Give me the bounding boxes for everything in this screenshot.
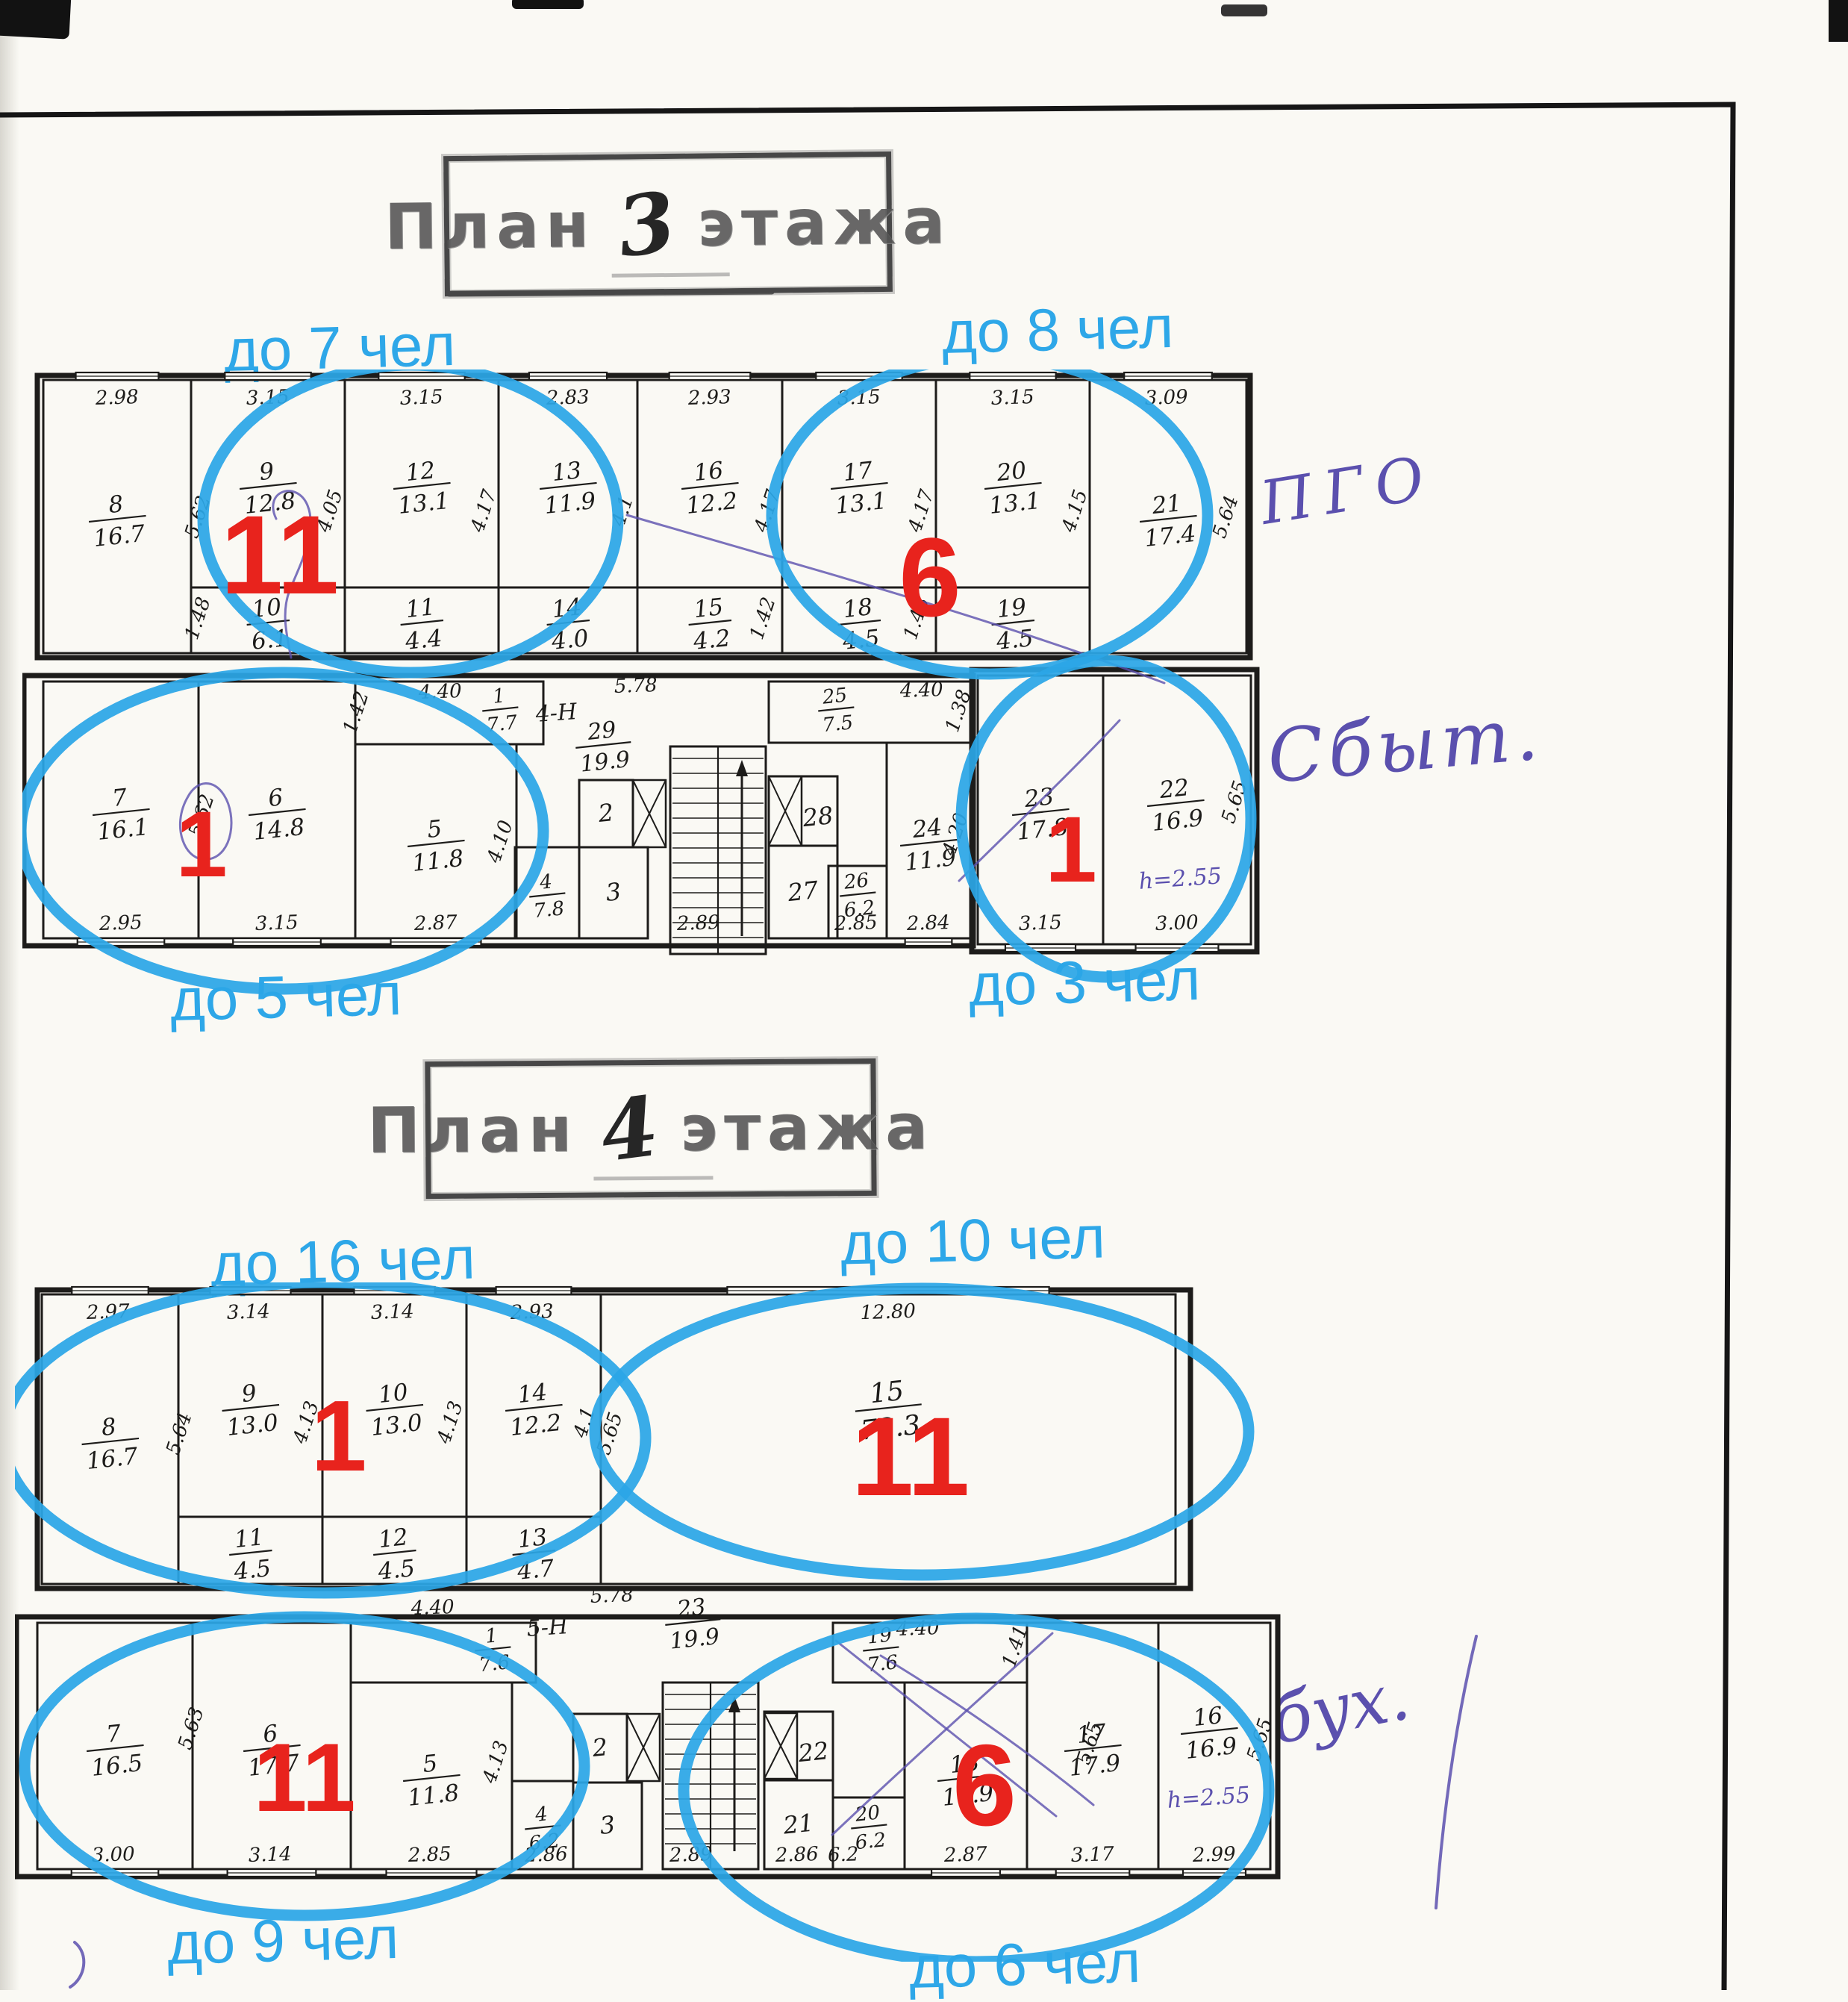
svg-text:8: 8 <box>100 1413 117 1441</box>
stamp-word: План <box>384 188 596 263</box>
svg-text:16.7: 16.7 <box>85 1443 140 1475</box>
staircase <box>670 746 766 954</box>
svg-text:16.9: 16.9 <box>1151 805 1205 837</box>
svg-text:21: 21 <box>1150 490 1183 520</box>
red-group-number: 11 <box>253 1723 355 1832</box>
dimension-label: 4.40 <box>899 679 943 702</box>
svg-text:24: 24 <box>911 814 943 843</box>
dimension-label: 3.14 <box>370 1300 414 1324</box>
floor3-title-stamp: План 3 этажа <box>443 152 893 296</box>
floor-number-handwritten: 4 <box>595 1077 664 1180</box>
room-label: 3 <box>605 877 622 907</box>
stamp-smudge-line <box>594 1176 713 1180</box>
svg-text:18: 18 <box>842 593 874 623</box>
svg-text:9: 9 <box>240 1379 257 1408</box>
scan-artifact <box>512 0 584 9</box>
room-label: 816.7 <box>79 1411 143 1475</box>
svg-text:7: 7 <box>105 1720 123 1748</box>
dimension-label: 3.14 <box>226 1300 270 1324</box>
red-group-number: 6 <box>899 514 961 640</box>
dimension-label: 3.17 <box>1070 1843 1114 1867</box>
dimension-label: 4.17 <box>466 487 502 536</box>
dimension-label: 4.13 <box>478 1738 513 1786</box>
room-label: 614.8 <box>246 782 309 846</box>
dimension-label: 5.63 <box>174 1704 208 1752</box>
dimension-label: 12.80 <box>860 1300 916 1325</box>
dimension-label: 3.15 <box>990 386 1034 410</box>
room-label: 2 <box>590 1733 609 1762</box>
svg-text:17.4: 17.4 <box>1143 520 1197 552</box>
svg-text:12: 12 <box>405 457 437 487</box>
room-label: 1311.9 <box>537 455 600 520</box>
shaft-xbox <box>769 776 802 846</box>
pen-stroke <box>1436 1636 1476 1908</box>
dimension-label: 2.87 <box>413 911 458 935</box>
dimension-label: 2.93 <box>687 386 731 410</box>
svg-text:6.2: 6.2 <box>854 1829 887 1854</box>
plan-annotation: 5-Н <box>525 1613 569 1642</box>
room-label: 3 <box>599 1810 616 1840</box>
svg-text:16.5: 16.5 <box>90 1750 144 1782</box>
dimension-label: 3.15 <box>255 911 299 935</box>
svg-text:7.8: 7.8 <box>532 897 565 923</box>
dimension-label: 3.15 <box>399 386 443 410</box>
shaft-xbox <box>633 780 666 847</box>
stamp-word: этажа <box>697 184 952 261</box>
svg-text:13: 13 <box>551 457 583 487</box>
svg-text:4.5: 4.5 <box>994 625 1034 655</box>
svg-text:4.5: 4.5 <box>376 1555 416 1585</box>
svg-text:15: 15 <box>693 593 725 623</box>
room-label: 1412.2 <box>502 1377 566 1441</box>
svg-text:14.8: 14.8 <box>252 814 306 846</box>
svg-text:4: 4 <box>534 1803 549 1827</box>
floor-plan-4-drawing: 816.7913.01013.01412.21572.3114.5124.513… <box>15 1282 1284 1962</box>
red-group-number: 1 <box>310 1379 366 1492</box>
dimension-label: 2.89 <box>675 911 720 935</box>
capacity-ellipse <box>961 661 1251 977</box>
dimension-label: 2.86 <box>774 1843 819 1867</box>
dimension-label: 3.14 <box>248 1843 292 1867</box>
room-label: 1213.1 <box>390 455 454 520</box>
svg-text:11.8: 11.8 <box>411 845 465 877</box>
dimension-label: 2.98 <box>94 386 139 410</box>
dimension-label: 3.15 <box>1018 911 1062 935</box>
dimension-label: 3.00 <box>1155 911 1199 935</box>
red-group-number: 1 <box>175 793 228 896</box>
room-label: 2319.9 <box>663 1592 724 1655</box>
room-label: 154.2 <box>686 593 735 655</box>
svg-text:10: 10 <box>377 1379 409 1409</box>
room-label: 1013.0 <box>363 1377 427 1441</box>
svg-text:11.9: 11.9 <box>543 487 597 520</box>
red-group-number: 6 <box>952 1721 1017 1850</box>
dimension-label: 1.42 <box>746 594 780 642</box>
dimension-label: 2.85 <box>407 1843 452 1867</box>
red-group-number: 11 <box>221 492 340 617</box>
capacity-caption: до 10 чел <box>840 1203 1106 1278</box>
svg-text:7: 7 <box>111 784 129 812</box>
plan-annotation: 4-Н <box>534 699 578 728</box>
svg-text:5: 5 <box>426 815 443 843</box>
room-label: 28 <box>801 801 834 832</box>
dimension-label: 6.2 <box>828 1843 859 1866</box>
svg-text:16: 16 <box>693 457 725 487</box>
svg-text:9: 9 <box>258 458 275 486</box>
shaft-xbox <box>627 1714 660 1781</box>
stamp-word: этажа <box>680 1090 934 1164</box>
dimension-label: 5.64 <box>162 1409 196 1457</box>
room-label: 716.1 <box>90 782 153 846</box>
stamp-word: План <box>367 1093 578 1167</box>
room-label: 124.5 <box>370 1523 419 1585</box>
dimension-label: 4.10 <box>483 817 518 866</box>
svg-text:20: 20 <box>995 457 1028 487</box>
room-label: 816.7 <box>86 488 149 552</box>
plan-annotation: h=2.55 <box>1138 863 1223 895</box>
svg-text:23: 23 <box>675 1594 708 1623</box>
svg-text:14: 14 <box>516 1379 549 1409</box>
stairs-direction-arrow <box>736 760 748 776</box>
room-label: 716.5 <box>84 1718 147 1782</box>
dimension-label: 5.64 <box>1208 493 1243 540</box>
capacity-caption: до 8 чел <box>941 293 1175 367</box>
svg-text:13.1: 13.1 <box>397 487 451 520</box>
handwritten-note-sbyt: Сбыт. <box>1264 691 1546 800</box>
svg-text:16.7: 16.7 <box>93 520 147 552</box>
svg-text:16.1: 16.1 <box>96 814 150 846</box>
dimension-label: 2.85 <box>833 911 878 935</box>
svg-text:16.9: 16.9 <box>1184 1733 1238 1765</box>
svg-text:19.9: 19.9 <box>579 746 631 778</box>
shaft-xbox <box>764 1713 797 1779</box>
dimension-label: 2.84 <box>905 911 950 935</box>
floor-plan-4: 816.7913.01013.01412.21572.3114.5124.513… <box>15 1282 1284 1962</box>
svg-text:4: 4 <box>538 870 554 894</box>
svg-text:12.2: 12.2 <box>509 1409 563 1441</box>
red-group-number: 11 <box>852 1394 970 1519</box>
floor-plan-3-drawing: 816.7912.81213.11311.91612.21713.12013.1… <box>22 369 1284 1011</box>
dimension-label: 5.78 <box>614 674 658 698</box>
svg-text:17: 17 <box>842 457 874 487</box>
room-label: 2013.1 <box>981 455 1045 520</box>
room-label: 1713.1 <box>828 455 891 520</box>
svg-text:8: 8 <box>107 490 125 519</box>
svg-text:12: 12 <box>377 1524 409 1553</box>
room-label: 114.5 <box>226 1523 275 1585</box>
room-label: 2919.9 <box>573 715 634 778</box>
svg-text:22: 22 <box>1158 774 1190 804</box>
svg-text:26: 26 <box>843 869 870 894</box>
svg-text:5: 5 <box>422 1750 439 1778</box>
svg-text:1: 1 <box>484 1624 499 1648</box>
stamp-smudge-line <box>612 272 730 278</box>
svg-text:7.5: 7.5 <box>821 711 854 737</box>
room-label: 27 <box>786 876 820 907</box>
room-label: 22 <box>796 1736 830 1768</box>
room-label: 1612.2 <box>678 455 742 520</box>
room-label: 511.8 <box>405 813 468 877</box>
svg-text:11: 11 <box>405 593 437 623</box>
scan-artifact <box>1829 0 1848 42</box>
room-label: 511.8 <box>400 1747 463 1812</box>
svg-text:4.2: 4.2 <box>691 625 731 655</box>
room-label: 2117.4 <box>1137 488 1200 552</box>
svg-text:4.4: 4.4 <box>403 625 443 655</box>
floor-number-handwritten: 3 <box>612 172 681 275</box>
dimension-label: 4.13 <box>433 1398 468 1447</box>
room-label: 2 <box>596 798 615 828</box>
svg-text:20: 20 <box>854 1801 881 1826</box>
room-label: 913.0 <box>219 1377 283 1441</box>
svg-text:13.0: 13.0 <box>369 1409 423 1441</box>
svg-text:19.9: 19.9 <box>669 1624 721 1655</box>
svg-text:13.0: 13.0 <box>225 1409 279 1441</box>
room-label: 21 <box>781 1808 815 1839</box>
dimension-label: 2.99 <box>1191 1843 1236 1867</box>
plan-annotation: h=2.55 <box>1167 1782 1251 1814</box>
scan-artifact <box>1221 4 1267 16</box>
dimension-label: 2.95 <box>98 911 143 935</box>
room-label: 257.5 <box>816 684 857 738</box>
dimension-label: 5.78 <box>590 1584 634 1608</box>
dimension-label: 1.48 <box>181 594 215 642</box>
svg-text:16: 16 <box>1192 1702 1224 1732</box>
room-label: 2216.9 <box>1144 773 1208 837</box>
svg-text:12.2: 12.2 <box>685 487 739 520</box>
floor-plan-3: 816.7912.81213.11311.91612.21713.12013.1… <box>22 369 1284 1011</box>
svg-text:13.1: 13.1 <box>988 487 1042 520</box>
scanned-page: { "page": { "background": "#faf9f4", "in… <box>0 0 1848 1990</box>
svg-text:6: 6 <box>267 784 284 812</box>
room-label: 114.4 <box>398 593 447 655</box>
dimension-label: 4.15 <box>1058 487 1093 535</box>
svg-text:19: 19 <box>996 593 1028 623</box>
svg-text:1: 1 <box>492 685 507 708</box>
dimension-label: 1.42 <box>339 688 373 736</box>
svg-text:11.8: 11.8 <box>407 1780 461 1812</box>
svg-text:29: 29 <box>586 717 618 746</box>
floor4-title-stamp: План 4 этажа <box>425 1058 876 1199</box>
red-group-number: 1 <box>1045 798 1097 902</box>
svg-text:25: 25 <box>821 684 849 708</box>
svg-text:11: 11 <box>233 1524 265 1553</box>
svg-text:13.1: 13.1 <box>834 487 888 520</box>
dimension-label: 4.40 <box>410 1596 455 1620</box>
svg-text:4.5: 4.5 <box>232 1555 272 1585</box>
scan-artifact <box>0 0 72 40</box>
handwritten-note-buh: бух. <box>1264 1656 1416 1760</box>
